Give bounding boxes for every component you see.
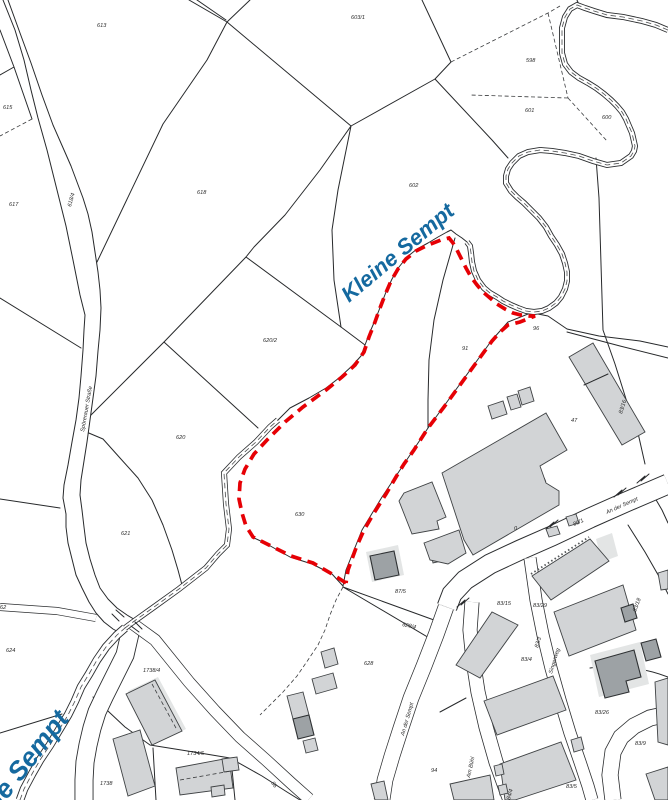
svg-text:620: 620 bbox=[176, 435, 186, 441]
svg-text:96: 96 bbox=[533, 326, 540, 332]
svg-text:1738: 1738 bbox=[100, 781, 113, 787]
svg-text:91: 91 bbox=[462, 346, 468, 352]
svg-text:47: 47 bbox=[571, 418, 578, 424]
svg-text:601: 601 bbox=[525, 108, 534, 114]
svg-text:603/1: 603/1 bbox=[351, 15, 365, 21]
svg-text:83/15: 83/15 bbox=[497, 601, 512, 607]
svg-text:87/5: 87/5 bbox=[395, 589, 407, 595]
svg-text:617: 617 bbox=[9, 202, 19, 208]
svg-text:83/29: 83/29 bbox=[533, 603, 547, 609]
svg-text:628: 628 bbox=[364, 661, 374, 667]
svg-text:598: 598 bbox=[526, 58, 536, 64]
svg-text:602: 602 bbox=[409, 183, 419, 189]
svg-text:613: 613 bbox=[97, 23, 107, 29]
svg-text:1734/6: 1734/6 bbox=[187, 751, 205, 757]
svg-text:83/26: 83/26 bbox=[595, 710, 610, 716]
svg-text:83/9: 83/9 bbox=[635, 741, 646, 747]
svg-text:618: 618 bbox=[197, 190, 207, 196]
svg-text:83/4: 83/4 bbox=[521, 657, 532, 663]
svg-text:62: 62 bbox=[0, 605, 7, 611]
svg-text:620/2: 620/2 bbox=[263, 338, 278, 344]
svg-text:615: 615 bbox=[3, 105, 13, 111]
svg-text:624: 624 bbox=[6, 648, 15, 654]
svg-text:630: 630 bbox=[295, 512, 305, 518]
svg-text:83/5: 83/5 bbox=[566, 784, 578, 790]
svg-text:94: 94 bbox=[431, 768, 437, 774]
svg-text:1738/4: 1738/4 bbox=[143, 668, 160, 674]
svg-text:600: 600 bbox=[602, 115, 612, 121]
svg-text:621: 621 bbox=[121, 531, 130, 537]
